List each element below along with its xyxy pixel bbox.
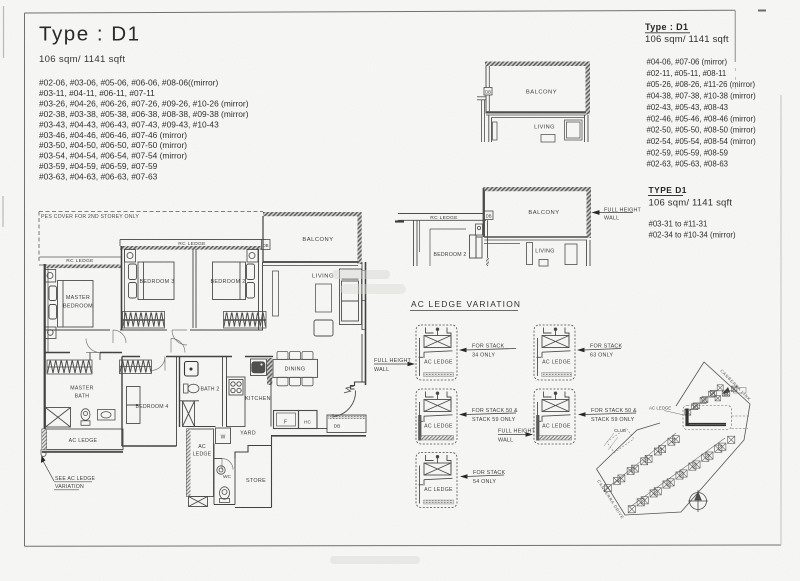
svg-text:#03-46, #04-46, #06-46, #07-46: #03-46, #04-46, #06-46, #07-46 (mirror) [39,130,187,140]
svg-text:DB: DB [485,90,491,95]
svg-text:CLUB: CLUB [614,428,626,433]
svg-text:FOR STACK 50 &: FOR STACK 50 & [591,408,637,414]
svg-text:BATH 2: BATH 2 [201,387,220,393]
svg-text:#03-26, #04-26, #06-26, #07-26: #03-26, #04-26, #06-26, #07-26, #09-26, … [39,98,249,108]
svg-text:BATH: BATH [75,394,90,400]
svg-text:#03-43, #04-43, #06-43, #07-43: #03-43, #04-43, #06-43, #07-43, #09-43, … [39,119,219,129]
svg-text:BEDROOM 3: BEDROOM 3 [139,279,174,285]
svg-text:#02-34 to #10-34 (mirror): #02-34 to #10-34 (mirror) [649,231,737,240]
svg-text:FOR STACK: FOR STACK [590,344,622,350]
svg-text:63 ONLY: 63 ONLY [590,353,613,359]
svg-text:RC LEDGE: RC LEDGE [430,215,458,221]
svg-text:AC LEDGE: AC LEDGE [424,487,453,493]
svg-text:STACK 59 ONLY: STACK 59 ONLY [591,417,635,423]
svg-text:AC LEDGE: AC LEDGE [542,360,571,366]
svg-text:#03-54, #04-54, #06-54, #07-54: #03-54, #04-54, #06-54, #07-54 (mirror) [39,151,187,161]
svg-text:WC: WC [223,474,232,480]
svg-text:DB: DB [263,243,269,248]
svg-text:BALCONY: BALCONY [526,90,557,96]
svg-text:106 sqm/ 1141 sqft: 106 sqm/ 1141 sqft [649,198,733,209]
svg-text:#02-46, #05-46, #08-46 (mirror: #02-46, #05-46, #08-46 (mirror) [647,114,757,123]
svg-text:#02-38, #03-38, #05-38, #06-38: #02-38, #03-38, #05-38, #06-38, #08-38, … [39,109,249,119]
svg-text:RC LEDGE: RC LEDGE [66,258,94,264]
svg-text:PES COVER FOR 2ND STOREY ONLY: PES COVER FOR 2ND STOREY ONLY [41,214,139,220]
svg-text:#02-54, #05-54, #08-54 (mirror: #02-54, #05-54, #08-54 (mirror) [647,137,757,146]
svg-text:LIVING: LIVING [312,274,334,280]
svg-text:YARD: YARD [240,431,256,437]
svg-text:#02-06, #03-06, #05-06, #06-06: #02-06, #03-06, #05-06, #06-06, #08-06((… [39,78,218,88]
svg-text:VARIATION: VARIATION [55,484,84,490]
svg-text:TYPE D1: TYPE D1 [649,185,687,195]
svg-text:DB: DB [334,424,341,430]
svg-text:DINING: DINING [285,367,306,373]
svg-text:#03-11, #04-11, #06-11, #07-11: #03-11, #04-11, #06-11, #07-11 [39,88,155,98]
svg-text:#03-59, #04-59, #06-59, #07-59: #03-59, #04-59, #06-59, #07-59 [39,161,158,171]
svg-text:106 sqm/ 1141 sqft: 106 sqm/ 1141 sqft [39,54,125,65]
svg-text:MASTER: MASTER [70,386,93,392]
svg-text:Type : D1: Type : D1 [645,22,688,32]
svg-text:FULL HEIGHT: FULL HEIGHT [498,428,536,434]
svg-text:#02-43, #05-43, #08-43: #02-43, #05-43, #08-43 [647,103,729,112]
svg-text:HC: HC [304,420,311,426]
svg-text:BALCONY: BALCONY [528,210,559,216]
svg-text:#03-63, #04-63, #06-63, #07-63: #03-63, #04-63, #06-63, #07-63 [39,172,158,182]
svg-text:#02-50, #05-50, #08-50 (mirror: #02-50, #05-50, #08-50 (mirror) [647,126,757,135]
svg-text:AC: AC [198,444,206,450]
svg-text:BEDROOM 2: BEDROOM 2 [210,279,245,285]
svg-text:AC LEDGE: AC LEDGE [424,424,453,430]
svg-text:WALL: WALL [374,367,389,373]
svg-text:FOR STACK: FOR STACK [473,470,505,476]
svg-text:34 ONLY: 34 ONLY [472,353,495,359]
svg-text:FOR STACK 50 &: FOR STACK 50 & [472,408,518,414]
svg-text:SEE AC LEDGE: SEE AC LEDGE [55,476,96,482]
svg-text:AC LEDGE: AC LEDGE [649,406,671,411]
svg-text:106 sqm/ 1141 sqft: 106 sqm/ 1141 sqft [645,34,729,45]
svg-text:FOR STACK: FOR STACK [472,344,504,350]
svg-text:BEDROOM: BEDROOM [63,304,93,310]
svg-text:AC LEDGE: AC LEDGE [542,424,571,430]
svg-text:Type : D1: Type : D1 [39,23,141,46]
svg-text:F: F [284,420,287,426]
svg-text:#03-31 to #11-31: #03-31 to #11-31 [649,220,708,229]
svg-text:STORE: STORE [246,478,266,484]
svg-text:#03-50, #04-50, #06-50, #07-50: #03-50, #04-50, #06-50, #07-50 (mirror) [39,140,187,150]
svg-text:BALCONY: BALCONY [302,237,333,243]
svg-text:W: W [221,435,226,441]
svg-text:WALL: WALL [604,216,619,222]
svg-text:MASTER: MASTER [66,295,90,301]
svg-text:AC LEDGE: AC LEDGE [424,360,453,366]
svg-text:#02-59, #05-59, #08-59: #02-59, #05-59, #08-59 [647,148,729,157]
svg-text:RC LEDGE: RC LEDGE [178,241,206,247]
svg-text:54 ONLY: 54 ONLY [473,479,496,485]
svg-text:#04-38, #07-38, #10-38 (mirror: #04-38, #07-38, #10-38 (mirror) [647,92,757,101]
svg-text:WALL: WALL [498,437,513,443]
svg-text:BEDROOM 2: BEDROOM 2 [434,252,467,258]
svg-text:BEDROOM 4: BEDROOM 4 [136,404,169,410]
svg-text:#02-63, #05-63, #08-63: #02-63, #05-63, #08-63 [647,160,729,169]
svg-text:DB: DB [486,213,492,218]
svg-text:AC LEDGE: AC LEDGE [69,438,98,444]
svg-text:AC LEDGE VARIATION: AC LEDGE VARIATION [411,299,521,309]
svg-text:LEDGE: LEDGE [193,452,212,458]
svg-text:FULL HEIGHT: FULL HEIGHT [374,358,412,364]
svg-text:STACK 59 ONLY: STACK 59 ONLY [472,417,516,423]
svg-text:LIVING: LIVING [535,249,554,255]
svg-text:LIVING: LIVING [534,125,555,131]
svg-text:#04-06, #07-06 (mirror): #04-06, #07-06 (mirror) [647,58,728,67]
svg-text:#02-11, #05-11, #08-11: #02-11, #05-11, #08-11 [647,69,727,78]
svg-text:KITCHEN: KITCHEN [245,396,271,402]
svg-text:#05-26, #08-26, #11-26 (mirror: #05-26, #08-26, #11-26 (mirror) [647,80,756,89]
